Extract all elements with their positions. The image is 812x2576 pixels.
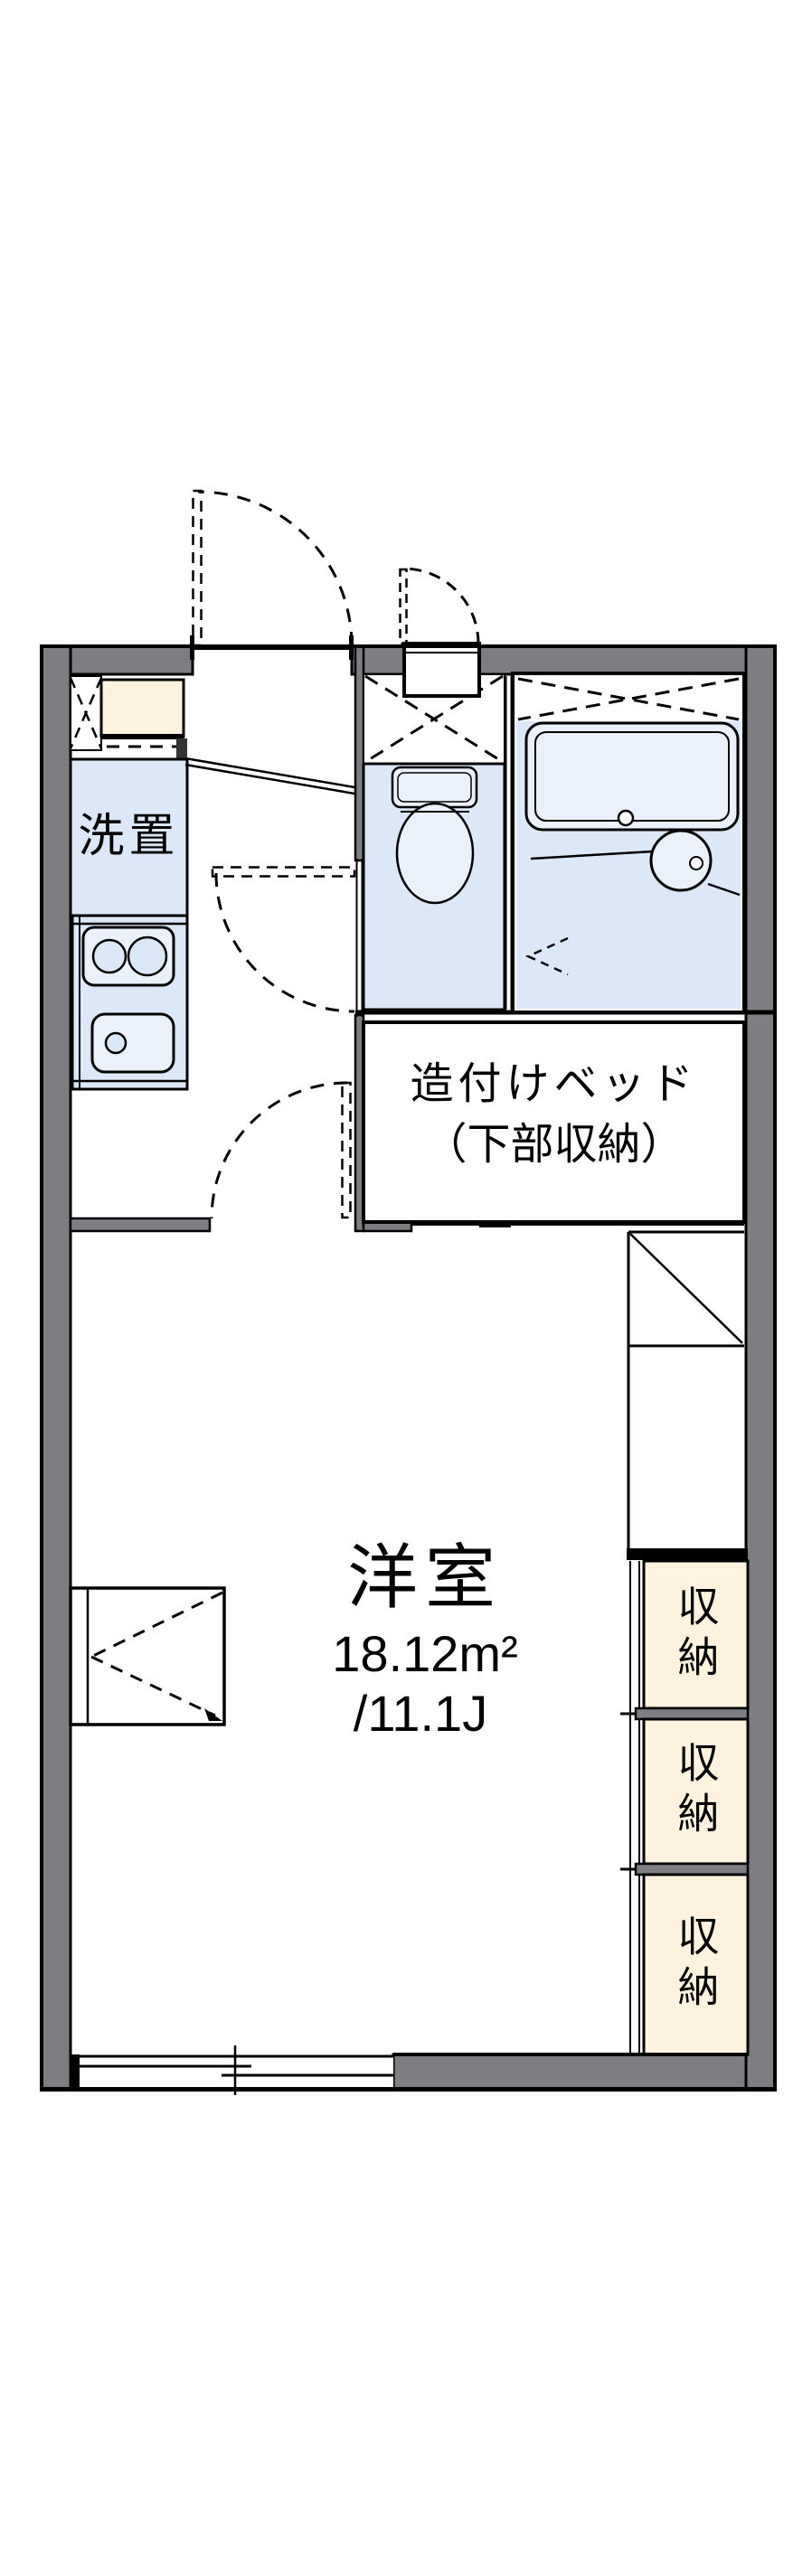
entry-opening: [190, 635, 354, 676]
room-door: [212, 1083, 351, 1218]
hallway-door: [212, 868, 354, 1012]
overhead-cabinet-strip: [71, 676, 101, 750]
entry-door: [194, 491, 353, 645]
storage-label-3: 収納: [644, 1875, 748, 2054]
wash-basin: [651, 831, 711, 890]
floorplan-drawing: [0, 0, 812, 2576]
toilet-door: [401, 569, 479, 644]
closet-nook: [628, 1232, 744, 1548]
toilet-window-bay: [404, 644, 479, 696]
kitchen-upper-cabinet: [101, 680, 187, 760]
storage-divider-1: [636, 1708, 748, 1719]
storage-label-1: 収納: [644, 1561, 748, 1708]
stove: [83, 927, 174, 985]
kitchen-counter: [72, 916, 187, 1089]
toilet: [392, 767, 477, 903]
room-area-m2: 18.12m²: [280, 1629, 570, 1679]
genkan-step: [185, 758, 354, 794]
storage-label-2: 収納: [644, 1719, 748, 1864]
kitchen-sink: [92, 1014, 174, 1072]
toilet-room: [364, 644, 505, 1010]
bed-label-line2: （下部収納）: [364, 1123, 744, 1167]
floorplan-page: 洗置 造付けベッド （下部収納） 洋室 18.12m² /11.1J 収納 収納…: [0, 0, 812, 2576]
side-window-box: [71, 1588, 224, 1725]
laundry-label: 洗置: [71, 813, 187, 859]
bathtub: [526, 723, 738, 830]
bathroom: [513, 673, 744, 1012]
toilet-bath-divider: [505, 676, 512, 1010]
room-name-label: 洋室: [280, 1542, 570, 1612]
room-area-jo: /11.1J: [276, 1688, 565, 1739]
storage-divider-2: [636, 1864, 748, 1875]
bed-label-line1: 造付けベッド: [364, 1063, 744, 1106]
